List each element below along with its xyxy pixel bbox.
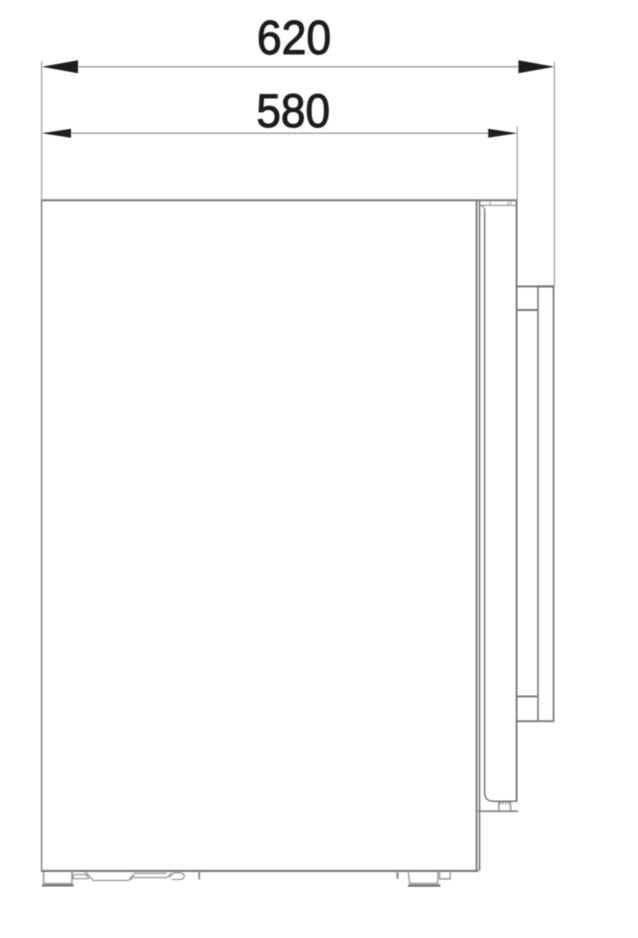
svg-text:620: 620 (257, 10, 331, 64)
svg-text:580: 580 (256, 85, 330, 138)
